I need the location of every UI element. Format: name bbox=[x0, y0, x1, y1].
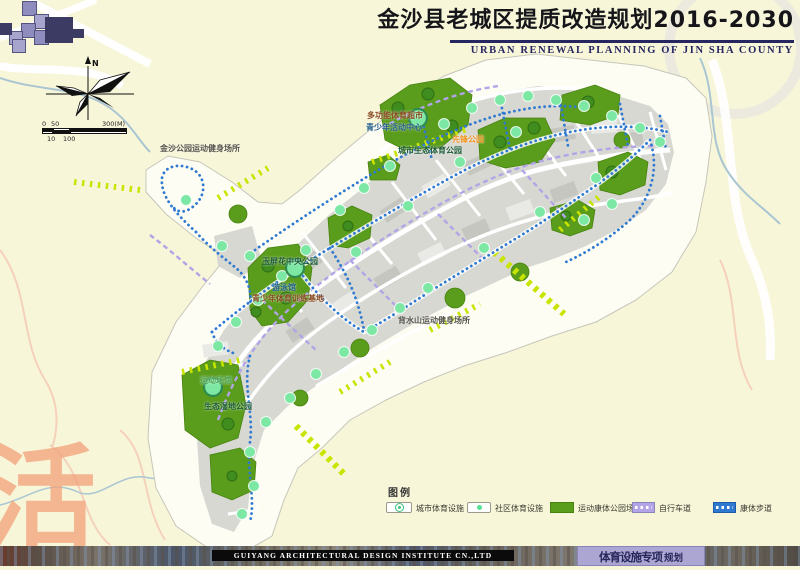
compass-rose: N bbox=[36, 54, 140, 124]
map-label-beishuishan: 背水山运动健身场所 bbox=[398, 316, 470, 325]
map-label-eco-sports-park: 城市生态体育公园 bbox=[398, 146, 462, 155]
page-subtitle: URBAN RENEWAL PLANNING OF JIN SHA COUNTY bbox=[471, 45, 794, 56]
scale-label: 0 bbox=[42, 120, 46, 128]
page-title: 金沙县老城区提质改造规划2016-2030 bbox=[377, 4, 794, 38]
legend-label: 自行车道 bbox=[659, 503, 691, 514]
legend-label: 社区体育设施 bbox=[495, 503, 543, 514]
map-label-sports-market: 多功能体育超市 bbox=[367, 111, 423, 120]
park-ground-swatch bbox=[550, 502, 574, 513]
legend-label: 康体步道 bbox=[740, 503, 772, 514]
map-label-central-park: 玉屏花中央公园 bbox=[262, 257, 318, 266]
logo-square bbox=[0, 23, 12, 35]
bike-lane-swatch bbox=[632, 502, 655, 513]
community-facility-icon bbox=[467, 502, 491, 513]
scale-label: 100 bbox=[63, 135, 75, 143]
scale-label: 300(M) bbox=[102, 120, 125, 128]
map-label-sports-venue: 运动场馆 bbox=[200, 376, 232, 385]
fitness-trail-swatch bbox=[713, 502, 736, 513]
scale-label: 10 bbox=[47, 135, 55, 143]
legend-title: 图例 bbox=[388, 484, 412, 499]
map-label-wetland-park: 生态湿地公园 bbox=[204, 402, 252, 411]
city-facility-icon bbox=[386, 502, 412, 513]
map-label-youth-center: 青少年活动中心 bbox=[366, 123, 422, 132]
logo-square bbox=[12, 39, 26, 53]
watermark-character: 活 bbox=[0, 444, 96, 554]
north-label: N bbox=[92, 59, 99, 68]
map-label-jinsha-park: 金沙公园运动健身场所 bbox=[160, 144, 240, 153]
north-arrow bbox=[85, 56, 91, 64]
planning-poster: { "header": { "title": "金沙县老城区提质改造规划2016… bbox=[0, 0, 800, 566]
map-label-natatorium: 游泳馆 bbox=[272, 283, 296, 292]
logo-square bbox=[73, 29, 84, 38]
company-bar: GUIYANG ARCHITECTURAL DESIGN INSTITUTE C… bbox=[212, 550, 514, 561]
map-label-training-base: 青少年体育训练基地 bbox=[252, 294, 324, 303]
logo-square bbox=[45, 17, 73, 43]
legend: 图例 城市体育设施 社区体育设施 运动康体公园场地 自行车道 康体步道 bbox=[385, 484, 795, 526]
institute-logo bbox=[0, 0, 95, 62]
scale-label: 50 bbox=[51, 120, 59, 128]
scale-bar: 0 50 300(M) 10 100 bbox=[42, 120, 134, 142]
title-rule bbox=[450, 40, 794, 43]
title-block: 金沙县老城区提质改造规划2016-2030 bbox=[377, 4, 794, 38]
planning-stamp: 体育设施专项规划 bbox=[577, 546, 705, 566]
map-label-pioneer-park: 先锋公园 bbox=[452, 135, 484, 144]
stamp-main-text: 体育设施专项 bbox=[599, 550, 662, 564]
stamp-suffix-text: 规划 bbox=[664, 553, 683, 564]
legend-label: 城市体育设施 bbox=[416, 503, 464, 514]
